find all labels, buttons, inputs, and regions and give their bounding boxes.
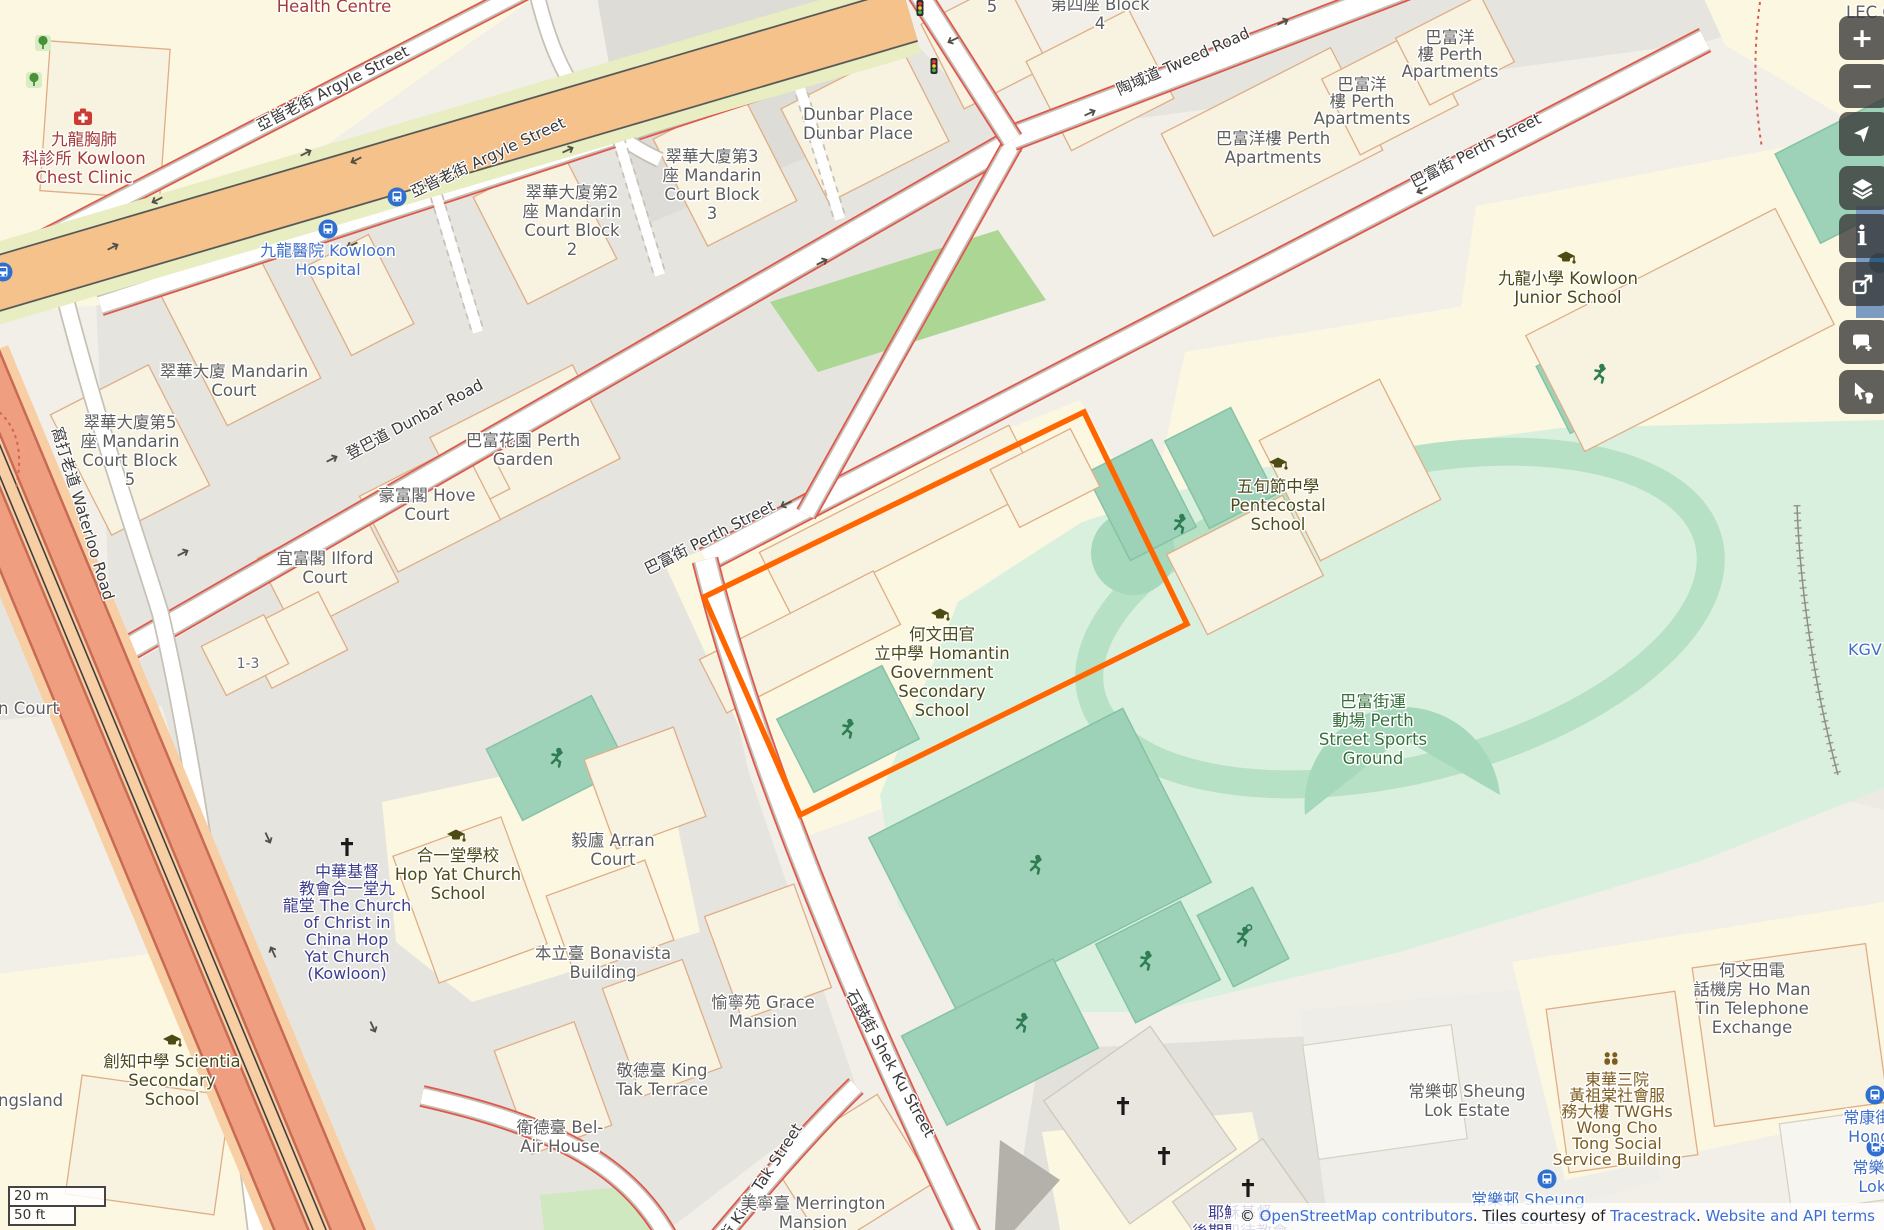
zoom-in-button[interactable]: + [1839, 16, 1884, 60]
map-key-button[interactable]: i [1839, 214, 1884, 258]
map-label: ngsland [0, 1091, 63, 1110]
zoom-out-button[interactable]: − [1839, 64, 1884, 108]
map-label: 巴富洋樓 PerthApartments [1216, 129, 1330, 167]
bus-stop-icon [1866, 1086, 1884, 1105]
tracestrack-link[interactable]: Tracestrack [1610, 1207, 1696, 1225]
minus-icon: − [1851, 73, 1874, 100]
query-features-button[interactable]: ? [1839, 370, 1884, 414]
svg-text:?: ? [1866, 392, 1872, 404]
map-label: Health Centre [277, 0, 392, 16]
share-button[interactable] [1839, 262, 1884, 306]
bus-stop-icon [319, 220, 338, 239]
map-label: 5 [987, 0, 998, 16]
osm-contributors-link[interactable]: OpenStreetMap contributors [1260, 1207, 1473, 1225]
map-viewport: Health Centre九龍胸肺科診所 KowloonChest Clinic… [0, 0, 1884, 1230]
tree-icon [26, 72, 42, 88]
map-label: 1-3 [237, 656, 260, 672]
plus-icon: + [1851, 25, 1874, 52]
copyright-text: © [1240, 1207, 1260, 1225]
share-icon [1853, 273, 1876, 296]
layers-button[interactable] [1839, 166, 1884, 210]
scale-bar: 20 m 50 ft [8, 1186, 106, 1226]
map-label: n Court [0, 699, 60, 718]
map-label: 衛德臺 Bel-Air House [517, 1118, 604, 1156]
note-plus-icon [1852, 330, 1876, 354]
tiles-text: . Tiles courtesy of [1473, 1207, 1610, 1225]
info-icon: i [1857, 223, 1867, 250]
period-text: . [1696, 1207, 1706, 1225]
navigation-arrow-icon [1853, 123, 1875, 145]
map-label: 常康街 ShHong St [1843, 1108, 1884, 1146]
layers-icon [1853, 177, 1876, 200]
map-label: 敬德臺 KingTak Terrace [615, 1061, 708, 1099]
add-note-button[interactable] [1839, 320, 1884, 364]
map-label: Dunbar PlaceDunbar Place [803, 105, 913, 143]
locate-button[interactable] [1839, 112, 1884, 156]
terms-link[interactable]: Website and API terms [1706, 1207, 1876, 1225]
attribution-bar: © OpenStreetMap contributors. Tiles cour… [1231, 1203, 1884, 1230]
bus-stop-icon [388, 188, 407, 207]
bus-stop-icon [1538, 1170, 1557, 1189]
map-label: 常樂邨 SheungLok Estate [1408, 1082, 1525, 1120]
map-label: KGV Staff [1848, 640, 1884, 659]
map-canvas[interactable]: Health Centre九龍胸肺科診所 KowloonChest Clinic… [0, 0, 1884, 1230]
map-label: 巴富街 Perth Street [1407, 110, 1544, 191]
traffic-light-icon [917, 0, 924, 16]
map-label: 九龍小學 KowloonJunior School [1498, 269, 1638, 307]
query-cursor-icon: ? [1852, 380, 1876, 404]
scale-imperial: 50 ft [8, 1207, 76, 1226]
traffic-light-icon [931, 58, 938, 74]
tree-icon [35, 35, 51, 51]
scale-metric: 20 m [8, 1186, 106, 1207]
